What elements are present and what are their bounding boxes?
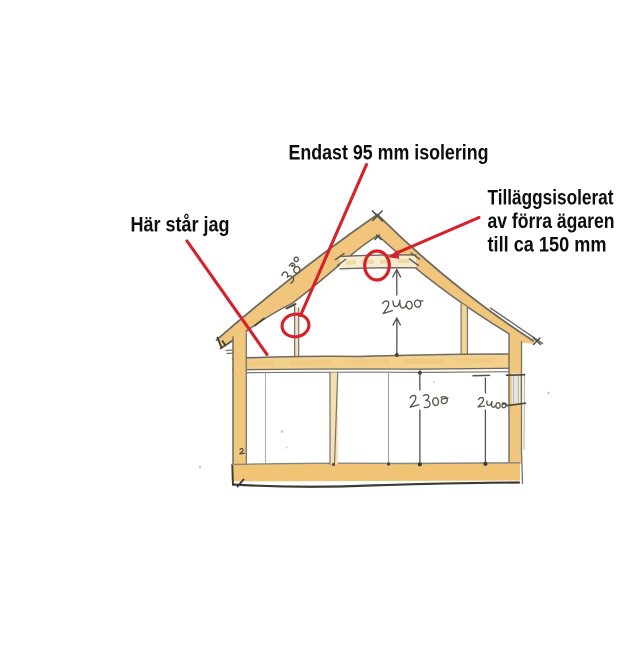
svg-text:Tilläggsisolerat: Tilläggsisolerat — [488, 187, 614, 210]
svg-text:Här står jag: Här står jag — [131, 214, 230, 237]
svg-text:till ca 150 mm: till ca 150 mm — [488, 234, 607, 257]
svg-text:av förra ägaren: av förra ägaren — [488, 210, 615, 233]
svg-text:Endast 95 mm isolering: Endast 95 mm isolering — [289, 142, 489, 165]
